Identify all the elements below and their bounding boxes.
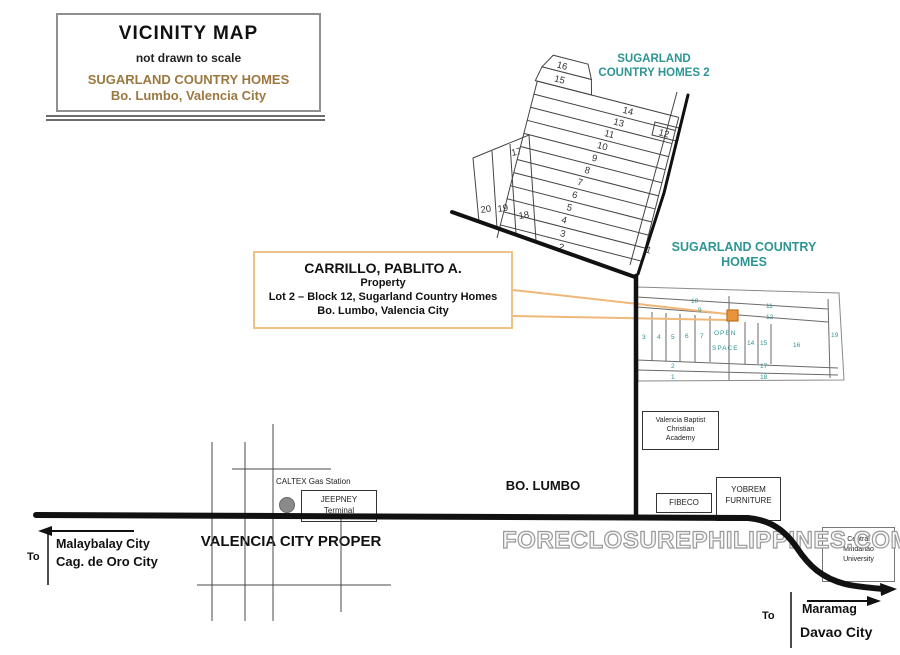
subdivision1-plat <box>637 287 844 381</box>
jeepney-line1: JEEPNEY <box>302 494 376 505</box>
lot-label: 9 <box>698 307 702 314</box>
lot-label: 10 <box>596 140 609 153</box>
property-line4: Bo. Lumbo, Valencia City <box>255 304 511 318</box>
property-owner: CARRILLO, PABLITO A. <box>255 260 511 276</box>
valencia-city-proper-label: VALENCIA CITY PROPER <box>196 533 386 550</box>
lot-label: 5 <box>671 334 675 341</box>
maramag-label: Maramag <box>802 602 857 616</box>
to-label-left: To <box>27 551 40 563</box>
project-name: SUGARLAND COUNTRY HOMES <box>58 72 319 87</box>
subdivision2-left-column <box>473 135 536 241</box>
lot-label: 12 <box>766 314 774 321</box>
lot-label: 7 <box>700 333 704 340</box>
lot-label: 13 <box>612 117 625 130</box>
right-arrowhead <box>867 596 881 606</box>
lot-label: 5 <box>565 202 573 214</box>
lot-label: 14 <box>747 340 755 347</box>
lot-label: 11 <box>766 303 773 310</box>
watermark: FORECLOSUREPHILIPPINES.COM <box>502 527 900 555</box>
lot-label: 3 <box>559 228 567 240</box>
subdivision2-lot12-shape <box>652 122 679 141</box>
vbca-line1: Valencia Baptist <box>643 416 718 425</box>
subdivision1-heading-line2: HOMES <box>656 255 832 270</box>
lot-label: 6 <box>571 189 579 201</box>
lot-label: 17 <box>510 146 523 159</box>
street-grid <box>197 424 391 621</box>
lot-label: 19 <box>497 203 509 215</box>
yobrem-line2: FURNITURE <box>717 495 780 506</box>
lot-label: 10 <box>691 298 699 305</box>
highway-end-arrowhead <box>880 583 897 596</box>
davao-city-label: Davao City <box>800 624 872 640</box>
lot-label: 19 <box>831 332 839 339</box>
cmu-line3: University <box>823 555 894 565</box>
cag-de-oro-city-label: Cag. de Oro City <box>56 554 158 569</box>
vbca-line2: Christian <box>643 425 718 434</box>
callout-leader-lines <box>513 290 738 321</box>
yobrem-line1: YOBREM <box>717 484 780 495</box>
lot-label: 17 <box>760 363 768 370</box>
lot-label: 3 <box>642 334 646 341</box>
lot-label: 2 <box>671 363 675 370</box>
left-arrowhead <box>38 526 52 536</box>
lot-label: 1 <box>644 244 653 256</box>
lot-label: 15 <box>760 340 768 347</box>
subdivision1-heading-line1: SUGARLAND COUNTRY <box>656 240 832 255</box>
lot-label: 4 <box>560 215 568 227</box>
subdivision1-heading: SUGARLAND COUNTRY HOMES <box>656 240 832 270</box>
open-space-label-line2: SPACE <box>712 345 739 352</box>
subdivision2-heading-line1: SUGARLAND <box>578 52 730 66</box>
caltex-station-dot <box>280 498 295 513</box>
project-location: Bo. Lumbo, Valencia City <box>58 88 319 103</box>
jeepney-line2: Terminal <box>302 505 376 516</box>
vbca-line3: Academy <box>643 434 718 443</box>
lot-label: 14 <box>621 105 634 118</box>
subdivision2-left-column-numbers: 20 19 18 17 <box>480 146 530 222</box>
open-space-label-line1: OPEN <box>714 330 736 337</box>
lot-label: 7 <box>576 177 584 189</box>
lot-label: 4 <box>657 334 661 341</box>
lot-label: 16 <box>793 342 801 349</box>
caltex-gas-station-label: CALTEX Gas Station <box>276 477 351 486</box>
yobrem-furniture-box: YOBREM FURNITURE <box>716 477 781 521</box>
property-callout: CARRILLO, PABLITO A. Property Lot 2 – Bl… <box>253 251 513 329</box>
vicinity-map: VICINITY MAP not drawn to scale SUGARLAN… <box>0 0 900 655</box>
fibeco-box: FIBECO <box>656 493 712 513</box>
jeepney-terminal-box: JEEPNEY Terminal <box>301 490 377 522</box>
lot-label: 1 <box>671 374 675 381</box>
lot-label: 6 <box>685 333 689 340</box>
lot-label: 18 <box>518 210 530 222</box>
lot-label: 16 <box>556 60 569 73</box>
to-label-right: To <box>762 610 775 622</box>
lot-label: 18 <box>760 374 768 381</box>
title-underline <box>46 116 325 120</box>
map-title: VICINITY MAP <box>58 23 319 45</box>
lot-label: 9 <box>590 153 598 165</box>
subdivision2-heading-line2: COUNTRY HOMES 2 <box>578 66 730 80</box>
bo-lumbo-label: BO. LUMBO <box>503 478 583 493</box>
valencia-baptist-academy-box: Valencia Baptist Christian Academy <box>642 411 719 450</box>
subdivision1-lot-numbers: 10 9 11 12 3 4 5 6 7 OPEN SPACE 14 15 16… <box>642 298 839 381</box>
property-line3: Lot 2 – Block 12, Sugarland Country Home… <box>255 290 511 304</box>
malaybalay-city-label: Malaybalay City <box>56 537 150 551</box>
map-subtitle: not drawn to scale <box>58 51 319 65</box>
title-box: VICINITY MAP not drawn to scale SUGARLAN… <box>56 13 321 112</box>
highlighted-lot <box>727 310 738 321</box>
lot-label: 15 <box>553 73 566 86</box>
lot-label: 2 <box>557 242 565 254</box>
property-line2: Property <box>255 276 511 290</box>
lot-label: 12 <box>657 127 670 140</box>
lot-label: 11 <box>603 128 615 141</box>
lot-label: 8 <box>583 165 591 177</box>
lot-label: 20 <box>480 204 492 216</box>
subdivision2-heading: SUGARLAND COUNTRY HOMES 2 <box>578 52 730 80</box>
